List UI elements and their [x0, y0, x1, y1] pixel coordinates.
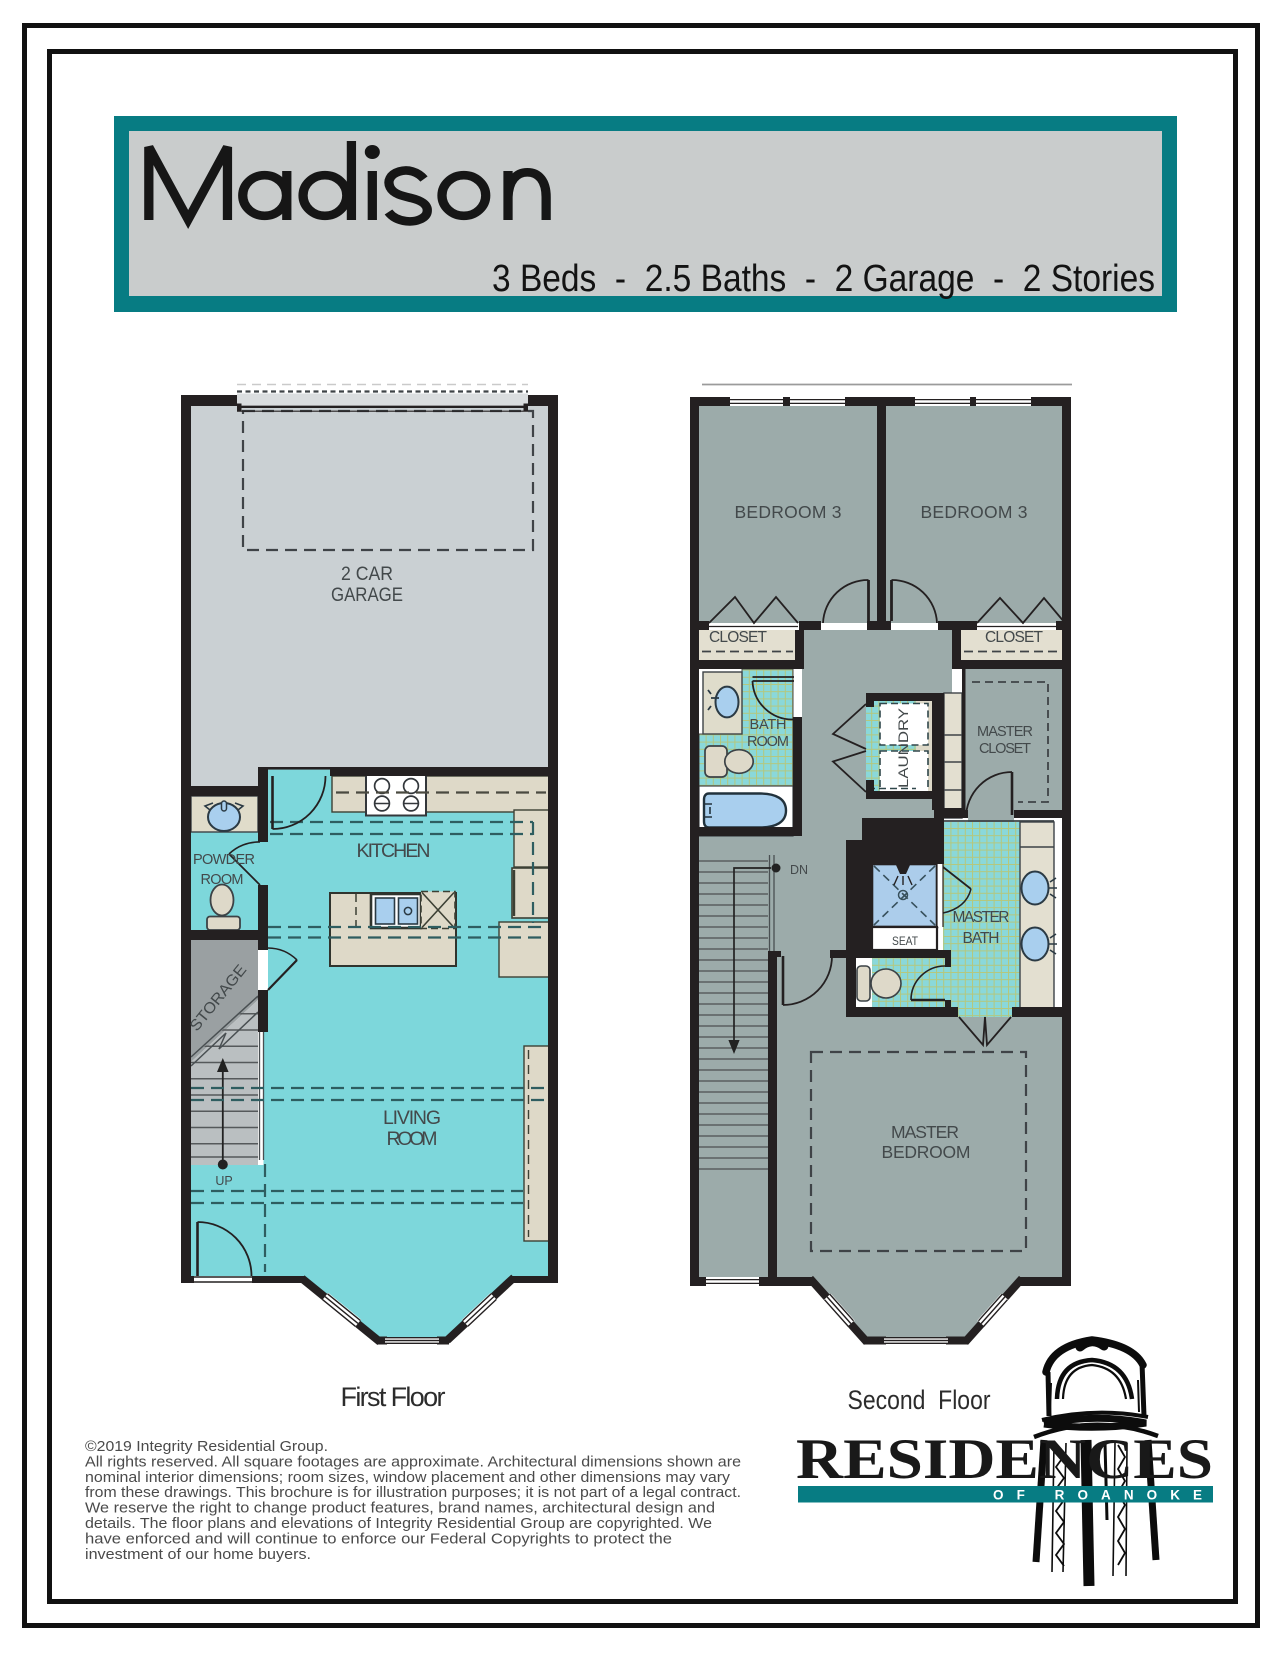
svg-text:MASTER: MASTER [977, 724, 1033, 740]
svg-text:LIVING: LIVING [383, 1107, 441, 1129]
svg-text:CLOSET: CLOSET [979, 741, 1031, 757]
svg-text:First Floor: First Floor [341, 1382, 446, 1412]
svg-text:investment of our home buyers.: investment of our home buyers. [85, 1547, 311, 1563]
svg-text:KITCHEN: KITCHEN [357, 840, 431, 862]
svg-text:POWDER: POWDER [193, 852, 255, 868]
svg-text:MASTER: MASTER [891, 1122, 959, 1142]
svg-text:GARAGE: GARAGE [331, 584, 403, 606]
svg-text:LAUNDRY: LAUNDRY [895, 707, 911, 788]
svg-text:BEDROOM: BEDROOM [882, 1142, 971, 1162]
svg-text:©2019 Integrity Residential Gr: ©2019 Integrity Residential Group. [85, 1439, 328, 1455]
svg-text:DN: DN [790, 863, 808, 877]
svg-text:nominal interior dimensions; r: nominal interior dimensions; room sizes,… [85, 1470, 731, 1486]
svg-text:Second Floor: Second Floor [848, 1385, 991, 1415]
svg-text:All rights reserved. All squar: All rights reserved. All square footages… [85, 1454, 741, 1470]
svg-text:BEDROOM 3: BEDROOM 3 [735, 502, 842, 522]
svg-text:ROOM: ROOM [201, 872, 244, 888]
svg-text:CLOSET: CLOSET [985, 629, 1044, 646]
svg-text:3 Beds - 2.5 Baths - 2 Gar: 3 Beds - 2.5 Baths - 2 Garage - 2 Storie… [492, 258, 1155, 300]
svg-text:2 CAR: 2 CAR [341, 563, 393, 585]
svg-text:BATH: BATH [750, 717, 787, 733]
svg-text:ROOM: ROOM [387, 1128, 438, 1150]
svg-text:details. The floor plans and e: details. The floor plans and elevations … [85, 1516, 712, 1532]
svg-text:BATH: BATH [963, 930, 1000, 947]
svg-text:BEDROOM 3: BEDROOM 3 [921, 502, 1028, 522]
svg-text:have enforced and will continu: have enforced and will continue to enfor… [85, 1531, 672, 1547]
svg-text:We reserve the right to change: We reserve the right to change product f… [85, 1501, 715, 1517]
svg-text:from these drawings. This broc: from these drawings. This brochure is fo… [85, 1485, 741, 1501]
svg-text:RESIDENCES: RESIDENCES [796, 1428, 1213, 1491]
svg-text:SEAT: SEAT [892, 934, 919, 948]
svg-text:MASTER: MASTER [953, 909, 1010, 926]
svg-text:UP: UP [215, 1174, 232, 1188]
svg-text:CLOSET: CLOSET [709, 629, 768, 646]
svg-text:ROOM: ROOM [747, 734, 789, 750]
